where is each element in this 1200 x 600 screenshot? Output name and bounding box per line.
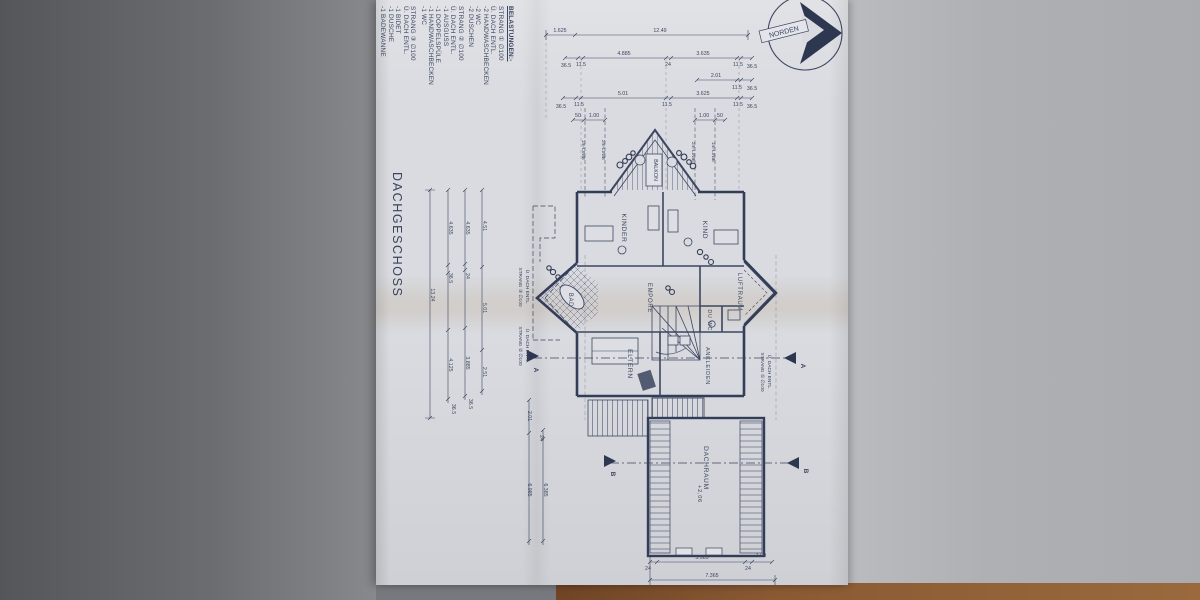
room-label-ankleiden: ANKLEIDEN: [704, 347, 710, 385]
shower-tray: [728, 310, 740, 320]
top-dimension-labels: 1.625 12.49 36.5 11.5 4.885 24 3.635 11.…: [553, 28, 757, 119]
dim: 5.01: [481, 303, 487, 313]
dim: 3.625: [696, 91, 709, 97]
dim: 50: [575, 113, 581, 119]
bed-kind: [714, 230, 738, 244]
dim: 11.5: [733, 102, 743, 108]
dim: 1.625: [553, 28, 566, 34]
dim: 4.635: [447, 221, 453, 234]
dim: 1.00: [589, 113, 599, 119]
floor-plan-drawing: NORDEN 1.625 12.49 36.5 11.5 4.885 24 3.…: [0, 0, 1200, 600]
north-compass: NORDEN: [759, 0, 842, 70]
stair-corridor: [652, 398, 704, 418]
dim: 36.5: [556, 104, 566, 110]
strand2-callout: Ü. DACH ENTL.: [524, 329, 531, 364]
section-letter: B: [802, 469, 809, 474]
dim: 36.5: [447, 273, 453, 283]
section-letter: A: [532, 368, 539, 373]
desk-kinder: [648, 206, 659, 230]
dim: 36.5: [747, 64, 757, 70]
plant-icon: [547, 266, 560, 279]
dim: 4.125: [447, 358, 453, 371]
room-label-eltern: ELTERN: [626, 349, 633, 379]
dim: 1.00: [699, 113, 709, 119]
section-marker-b-right: [787, 457, 799, 469]
strand1-callout: Ü. DACH ENTL.: [766, 355, 773, 390]
dim: 36.5: [747, 86, 757, 92]
level-annotation: +2,06: [696, 485, 702, 503]
room-label-wc: WC: [706, 321, 712, 331]
dim: 2.01: [711, 73, 721, 79]
dim: 11.5: [574, 102, 584, 108]
dim: 11.5: [733, 62, 743, 68]
room-label-balkon: BALKON: [652, 159, 658, 181]
dim: 7.365: [705, 573, 718, 579]
plant-icon: [666, 286, 675, 295]
roof-line-label: 2m-LINIE: [690, 142, 696, 162]
window: [676, 548, 692, 555]
dim: 36.5: [450, 404, 456, 414]
dim: 3.885: [464, 356, 470, 369]
bed-kinder: [585, 226, 613, 241]
strand2-callout: STRANG ② ∅100: [517, 326, 523, 365]
room-label-kinder: KINDER: [620, 213, 627, 242]
dim: 6.985: [526, 483, 532, 496]
wardrobe: [680, 336, 690, 345]
compass-label-box: NORDEN: [759, 19, 808, 42]
strand3-callout: STRANG ③ ∅100: [517, 267, 523, 306]
dim: 50: [717, 113, 723, 119]
strand1-callout: STRANG ① ∅100: [759, 352, 765, 391]
dim: 36.5: [747, 104, 757, 110]
top-dimension-chains: [544, 30, 754, 122]
dim: 11.5: [662, 102, 672, 108]
section-letter: B: [609, 472, 616, 477]
dim: 4.51: [481, 221, 487, 231]
dim: 3.635: [696, 51, 709, 57]
dim: 2.01: [526, 411, 532, 421]
stool-icon: [684, 238, 692, 246]
room-label-bad: BAD: [567, 293, 573, 307]
wardrobe: [668, 336, 678, 345]
plant-icon: [697, 249, 713, 264]
room-label-dachraum: DACHRAUM: [702, 446, 709, 490]
room-label-empore: EMPORE: [646, 283, 652, 313]
section-letter: A: [799, 364, 806, 369]
dim: 36.5: [467, 399, 473, 409]
dim: 5.01: [618, 91, 628, 97]
dim: 12.49: [653, 28, 666, 34]
interior-walls: [577, 192, 744, 396]
bottom-dimension-chains: [648, 557, 777, 585]
luftraum-void: [744, 262, 774, 324]
dim: 2.51: [481, 367, 487, 377]
section-marker-b-left: [604, 455, 616, 467]
dim: 11.5: [732, 85, 742, 91]
dim: 6.385: [542, 483, 548, 496]
dim: 24: [745, 566, 751, 572]
dim: 24: [645, 566, 651, 572]
roof-line-label: 1m-LINIE: [710, 142, 716, 162]
dim: 4.635: [464, 221, 470, 234]
photo-of-floor-plan: BELASTUNGEN:- STRANG ① ∅100 Ü. DACH ENTL…: [0, 0, 1200, 600]
dim: 4.885: [617, 51, 630, 57]
dim: 24: [464, 273, 470, 279]
room-label-luftraum: LUFTRAUM: [736, 273, 742, 311]
dim: 36.5: [561, 63, 571, 69]
window: [706, 548, 722, 555]
dim: 13.24: [429, 288, 435, 301]
room-label-du: DU: [706, 310, 712, 319]
section-marker-a-right: [784, 352, 796, 364]
room-label-kind: KIND: [701, 221, 708, 240]
desk-kind: [668, 210, 678, 232]
dim: 1.00: [756, 553, 766, 559]
strand3-callout: Ü. DACH ENTL.: [524, 270, 531, 305]
roof-line-label: 2m-LINIE: [600, 140, 606, 160]
dim: 24: [538, 435, 544, 441]
dim: 5.985: [695, 555, 708, 561]
dresser-dark: [638, 370, 656, 390]
stool-icon: [618, 246, 626, 254]
